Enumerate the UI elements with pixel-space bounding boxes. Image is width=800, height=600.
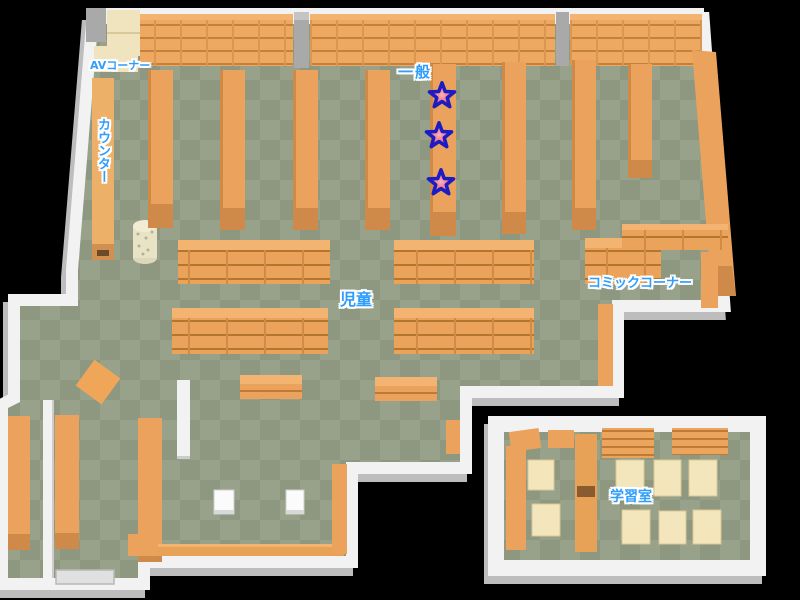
white-cabinet-shadow [286, 510, 304, 514]
divider-doorway [577, 486, 595, 497]
area-label-study-room: 学習室 [610, 486, 652, 506]
bookshelf-wall-section [140, 14, 293, 66]
shelf-top-edge [140, 14, 293, 20]
shelf-top-edge [310, 14, 555, 20]
study-desk [622, 510, 650, 544]
slatted-shelf [672, 428, 728, 455]
pillar [556, 12, 569, 66]
low-bookshelf [394, 308, 534, 354]
entrance-door [56, 570, 114, 584]
low-bookshelf [394, 240, 534, 284]
bookshelf [220, 70, 245, 230]
inner-wall-shadow [52, 400, 54, 578]
study-desk [693, 510, 721, 544]
bookshelf [148, 70, 173, 228]
bookshelf [509, 428, 541, 452]
study-desk [654, 460, 681, 496]
bookshelf [628, 64, 652, 178]
bookshelf [572, 60, 596, 230]
bookshelf [8, 416, 30, 550]
bookshelf [365, 70, 390, 230]
inner-wall-shadow [177, 456, 190, 459]
reading-bench [375, 377, 437, 401]
comic-shelf [598, 304, 613, 386]
area-label-comic-corner: コミックコーナー [588, 272, 692, 291]
study-desk [532, 504, 560, 536]
top-wall-bookshelves [90, 8, 704, 68]
area-label-children: 児童 [340, 286, 372, 310]
area-label-counter: カウンター [93, 118, 112, 228]
area-label-av-corner: AVコーナー [90, 57, 150, 73]
pillar [294, 12, 309, 68]
bookshelf-wall-section [310, 14, 555, 66]
bookshelf [548, 430, 574, 448]
av-shelf-line [107, 32, 140, 34]
wall-shelf [446, 420, 460, 454]
pillar [86, 8, 106, 42]
counter-slot [97, 250, 109, 256]
slatted-shelf [602, 428, 654, 458]
bookshelf [502, 62, 526, 234]
comic-shelf [701, 252, 718, 308]
reading-bench [240, 375, 302, 399]
low-bookshelf [172, 308, 328, 354]
bookshelf-wall-section [570, 14, 702, 66]
bookshelf [293, 70, 318, 230]
comic-shelf-edge [622, 224, 728, 230]
area-label-general: 一般 [398, 61, 432, 82]
study-desk [528, 460, 554, 490]
library-floor-map: AVコーナー カウンター 一般 児童 コミックコーナー 学習室 [0, 0, 800, 600]
white-cabinet-shadow [214, 510, 234, 514]
shelf-top-edge [570, 14, 702, 20]
bookshelf [506, 446, 526, 550]
inner-wall [177, 380, 190, 458]
bookshelf [55, 415, 79, 549]
study-desk [659, 511, 686, 544]
floor-map-graphic [0, 0, 800, 600]
pillar-top [294, 12, 309, 20]
wall-shelf [332, 464, 347, 554]
low-bookshelf [178, 240, 330, 284]
wall-shelf-strip-edge [158, 544, 344, 547]
study-desk [689, 460, 717, 496]
corner-shelf [128, 534, 158, 556]
